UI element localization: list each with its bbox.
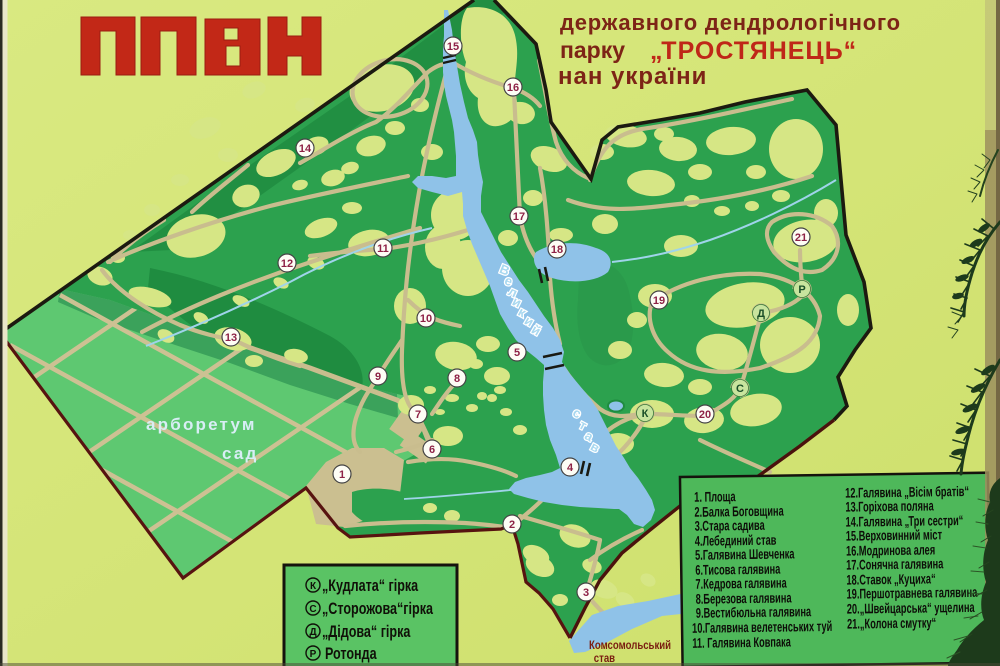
- svg-text:парку: парку: [560, 37, 625, 63]
- svg-text:19: 19: [653, 295, 665, 307]
- svg-text:3: 3: [583, 587, 589, 599]
- svg-text:С: С: [309, 604, 316, 615]
- svg-text:Ротонда: Ротонда: [325, 644, 377, 663]
- svg-text:Р: Р: [310, 649, 317, 660]
- svg-text:„Сторожова“гірка: „Сторожова“гірка: [322, 599, 434, 618]
- svg-text:18: 18: [551, 244, 563, 256]
- svg-text:1: 1: [339, 469, 345, 481]
- svg-text:14: 14: [299, 143, 312, 155]
- svg-text:К: К: [642, 408, 649, 420]
- svg-text:17: 17: [513, 211, 525, 223]
- svg-text:16: 16: [507, 82, 519, 94]
- svg-text:С: С: [736, 383, 744, 395]
- svg-text:20: 20: [699, 409, 711, 421]
- svg-text:арборетум: арборетум: [146, 415, 257, 434]
- svg-text:„ТРОСТЯНЕЦЬ“: „ТРОСТЯНЕЦЬ“: [650, 37, 857, 65]
- svg-text:державного дендрологічного: державного дендрологічного: [560, 10, 901, 35]
- svg-text:К: К: [310, 581, 317, 592]
- svg-text:21: 21: [795, 232, 807, 244]
- svg-text:Р: Р: [798, 284, 805, 296]
- svg-text:12: 12: [281, 258, 293, 270]
- svg-text:сад: сад: [222, 444, 259, 463]
- svg-text:Д: Д: [309, 627, 316, 638]
- svg-text:11. Галявина Ковпака: 11. Галявина Ковпака: [692, 633, 791, 651]
- svg-text:8: 8: [454, 373, 460, 385]
- svg-text:Д: Д: [757, 308, 765, 320]
- svg-text:7: 7: [415, 409, 421, 421]
- svg-text:11: 11: [377, 243, 389, 255]
- svg-text:21.„Колона смутку“: 21.„Колона смутку“: [847, 614, 936, 632]
- svg-text:9: 9: [375, 371, 381, 383]
- svg-text:2: 2: [509, 519, 515, 531]
- svg-text:13: 13: [225, 332, 237, 344]
- svg-text:10: 10: [420, 313, 432, 325]
- svg-text:6: 6: [429, 444, 435, 456]
- svg-text:„Кудлата“ гірка: „Кудлата“ гірка: [322, 576, 419, 595]
- svg-text:5: 5: [514, 347, 520, 359]
- svg-text:Комсомольський: Комсомольський: [589, 639, 671, 652]
- svg-text:15: 15: [447, 41, 459, 53]
- svg-text:4: 4: [567, 462, 574, 474]
- svg-text:нан україни: нан україни: [558, 63, 707, 90]
- svg-text:„Дідова“ гірка: „Дідова“ гірка: [322, 622, 411, 641]
